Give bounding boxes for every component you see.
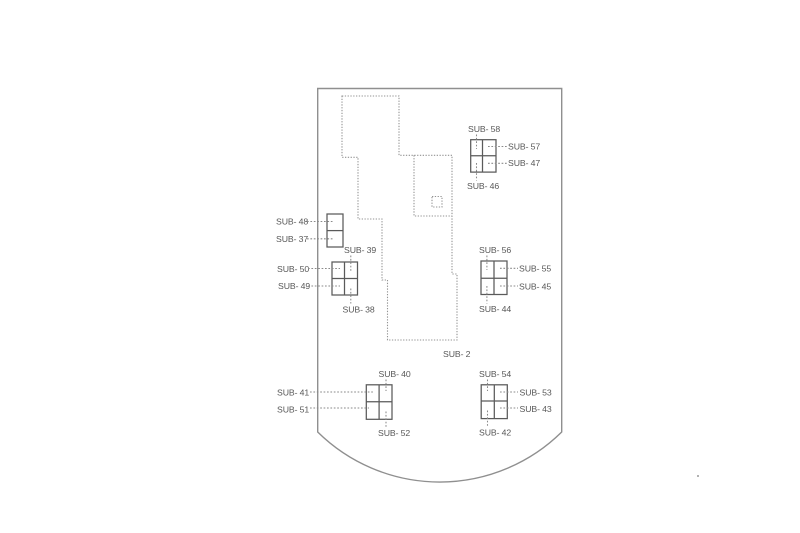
svg-text:SUB- 41: SUB- 41: [277, 388, 309, 398]
svg-text:SUB- 55: SUB- 55: [519, 264, 551, 274]
svg-text:SUB- 48: SUB- 48: [276, 217, 308, 227]
svg-text:SUB- 46: SUB- 46: [467, 181, 499, 191]
svg-text:SUB- 58: SUB- 58: [468, 124, 500, 134]
svg-text:SUB- 51: SUB- 51: [277, 405, 309, 415]
svg-text:SUB- 45: SUB- 45: [519, 282, 551, 292]
svg-text:SUB- 2: SUB- 2: [443, 349, 471, 359]
svg-text:SUB- 47: SUB- 47: [508, 158, 540, 168]
svg-text:SUB- 54: SUB- 54: [479, 369, 511, 379]
svg-text:SUB- 53: SUB- 53: [520, 388, 552, 398]
svg-text:SUB- 44: SUB- 44: [479, 304, 511, 314]
svg-text:SUB- 57: SUB- 57: [508, 141, 540, 151]
svg-text:SUB- 39: SUB- 39: [344, 245, 376, 255]
svg-text:SUB- 56: SUB- 56: [479, 245, 511, 255]
svg-text:SUB- 38: SUB- 38: [343, 305, 375, 315]
svg-text:SUB- 49: SUB- 49: [278, 281, 310, 291]
svg-text:SUB- 50: SUB- 50: [277, 264, 309, 274]
svg-text:SUB- 42: SUB- 42: [479, 428, 511, 438]
svg-text:SUB- 40: SUB- 40: [379, 369, 411, 379]
svg-text:SUB- 37: SUB- 37: [276, 234, 308, 244]
svg-text:SUB- 52: SUB- 52: [378, 428, 410, 438]
svg-text:SUB- 43: SUB- 43: [520, 404, 552, 414]
